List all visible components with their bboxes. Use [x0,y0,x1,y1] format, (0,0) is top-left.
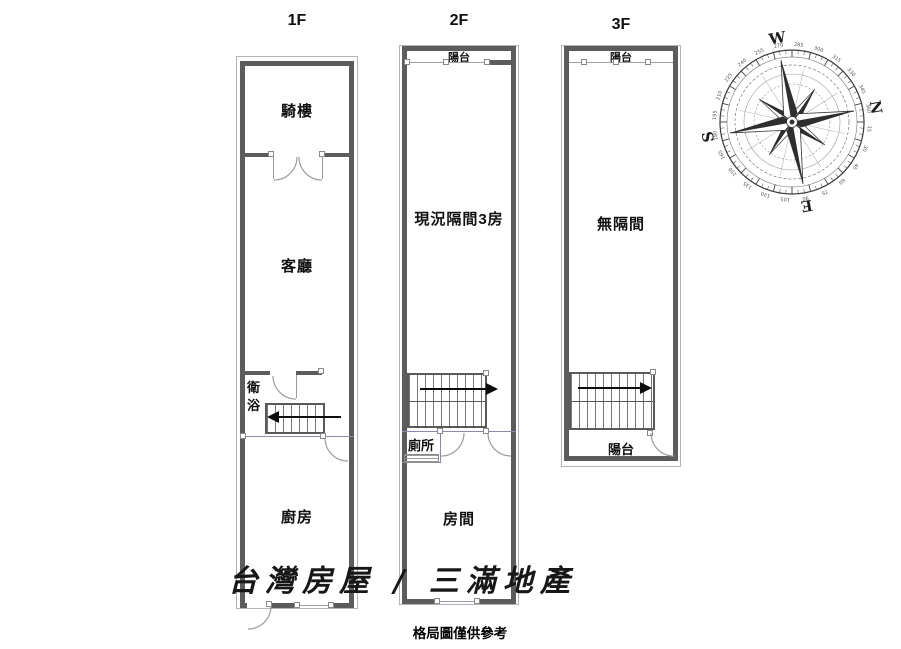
room-label-arcade: 騎樓 [236,100,358,121]
wall-1f-bottom [240,603,247,608]
door-hinge-marker [240,433,246,439]
wall-2f-balcony-right [487,60,511,65]
room-label-toilet: 廁所 [402,435,440,454]
floor-title-2f: 2F [399,12,519,30]
window-marker [443,59,449,65]
washbasin [404,454,439,463]
compass-letter-e: E [800,196,814,216]
stairs-arrow-head [640,382,652,394]
svg-text:210: 210 [715,90,724,101]
room-label-room-2f: 房間 [399,508,519,529]
floor-title-1f: 1F [236,12,358,30]
window-marker [581,59,587,65]
stairs-mid-landing [571,401,653,402]
window-line-1f [299,605,331,606]
stairs-2f [407,373,487,428]
wall-1f-bottom [333,603,354,608]
svg-text:120: 120 [760,190,771,199]
window-marker [404,59,410,65]
compass-rose: 1530456075901051201351501651801952102252… [698,28,886,216]
window-marker [294,602,300,608]
svg-text:300: 300 [813,45,824,54]
svg-text:285: 285 [794,42,804,49]
room-label-main-3f: 無隔間 [561,213,681,234]
floor-plan-page: 1F 騎樓 客廳 衛浴 廚房 2F 陽台 現況隔間3房 [0,0,901,649]
svg-text:15: 15 [865,125,872,132]
window-marker [613,59,619,65]
compass-letter-s: S [698,130,718,144]
svg-text:195: 195 [712,110,719,120]
svg-text:45: 45 [851,162,860,171]
door-swing-arc [298,156,323,181]
stairs-3f [569,372,655,430]
svg-text:60: 60 [837,177,846,186]
compass-letter-n: N [866,99,886,116]
window-marker [645,59,651,65]
svg-text:30: 30 [860,144,868,152]
window-marker [484,59,490,65]
svg-text:105: 105 [780,195,790,202]
door-hinge-marker [318,368,324,374]
door-swing-arc [487,432,512,457]
stairs-direction-arrow [277,416,341,418]
room-label-kitchen: 廚房 [236,506,358,527]
door-hinge-marker [650,369,656,375]
door-swing-arc [247,605,272,630]
room-label-bath: 衛浴 [245,379,262,414]
stairs-arrow-head [267,411,279,423]
wall-1f-entry-right [322,153,349,157]
room-label-main-2f: 現況隔間3房 [399,208,519,229]
stairs-mid-landing [409,401,485,402]
door-swing-arc [272,375,297,400]
stairs-direction-arrow [578,387,640,389]
room-label-living: 客廳 [236,255,358,276]
compass-letter-w: W [766,28,788,49]
window-marker [328,602,334,608]
wall-3f-right [673,46,678,461]
svg-text:75: 75 [820,188,828,196]
stairs-direction-arrow [420,388,486,390]
window-line-2f [438,601,478,602]
door-swing-arc [324,437,349,462]
compass-rings: 1530456075901051201351501651801952102252… [698,28,886,216]
floor-title-3f: 3F [561,16,681,34]
stairs-arrow-head [486,383,498,395]
door-swing-arc [650,432,675,457]
reference-caption: 格局圖僅供參考 [394,622,526,642]
door-swing-arc [440,432,465,457]
wall-1f-top [240,61,354,66]
watermark-text: 台灣房屋 / 三滿地產 [228,556,577,600]
wall-1f-bath-left [244,371,270,375]
door-swing-arc [273,156,298,181]
door-hinge-marker [483,370,489,376]
